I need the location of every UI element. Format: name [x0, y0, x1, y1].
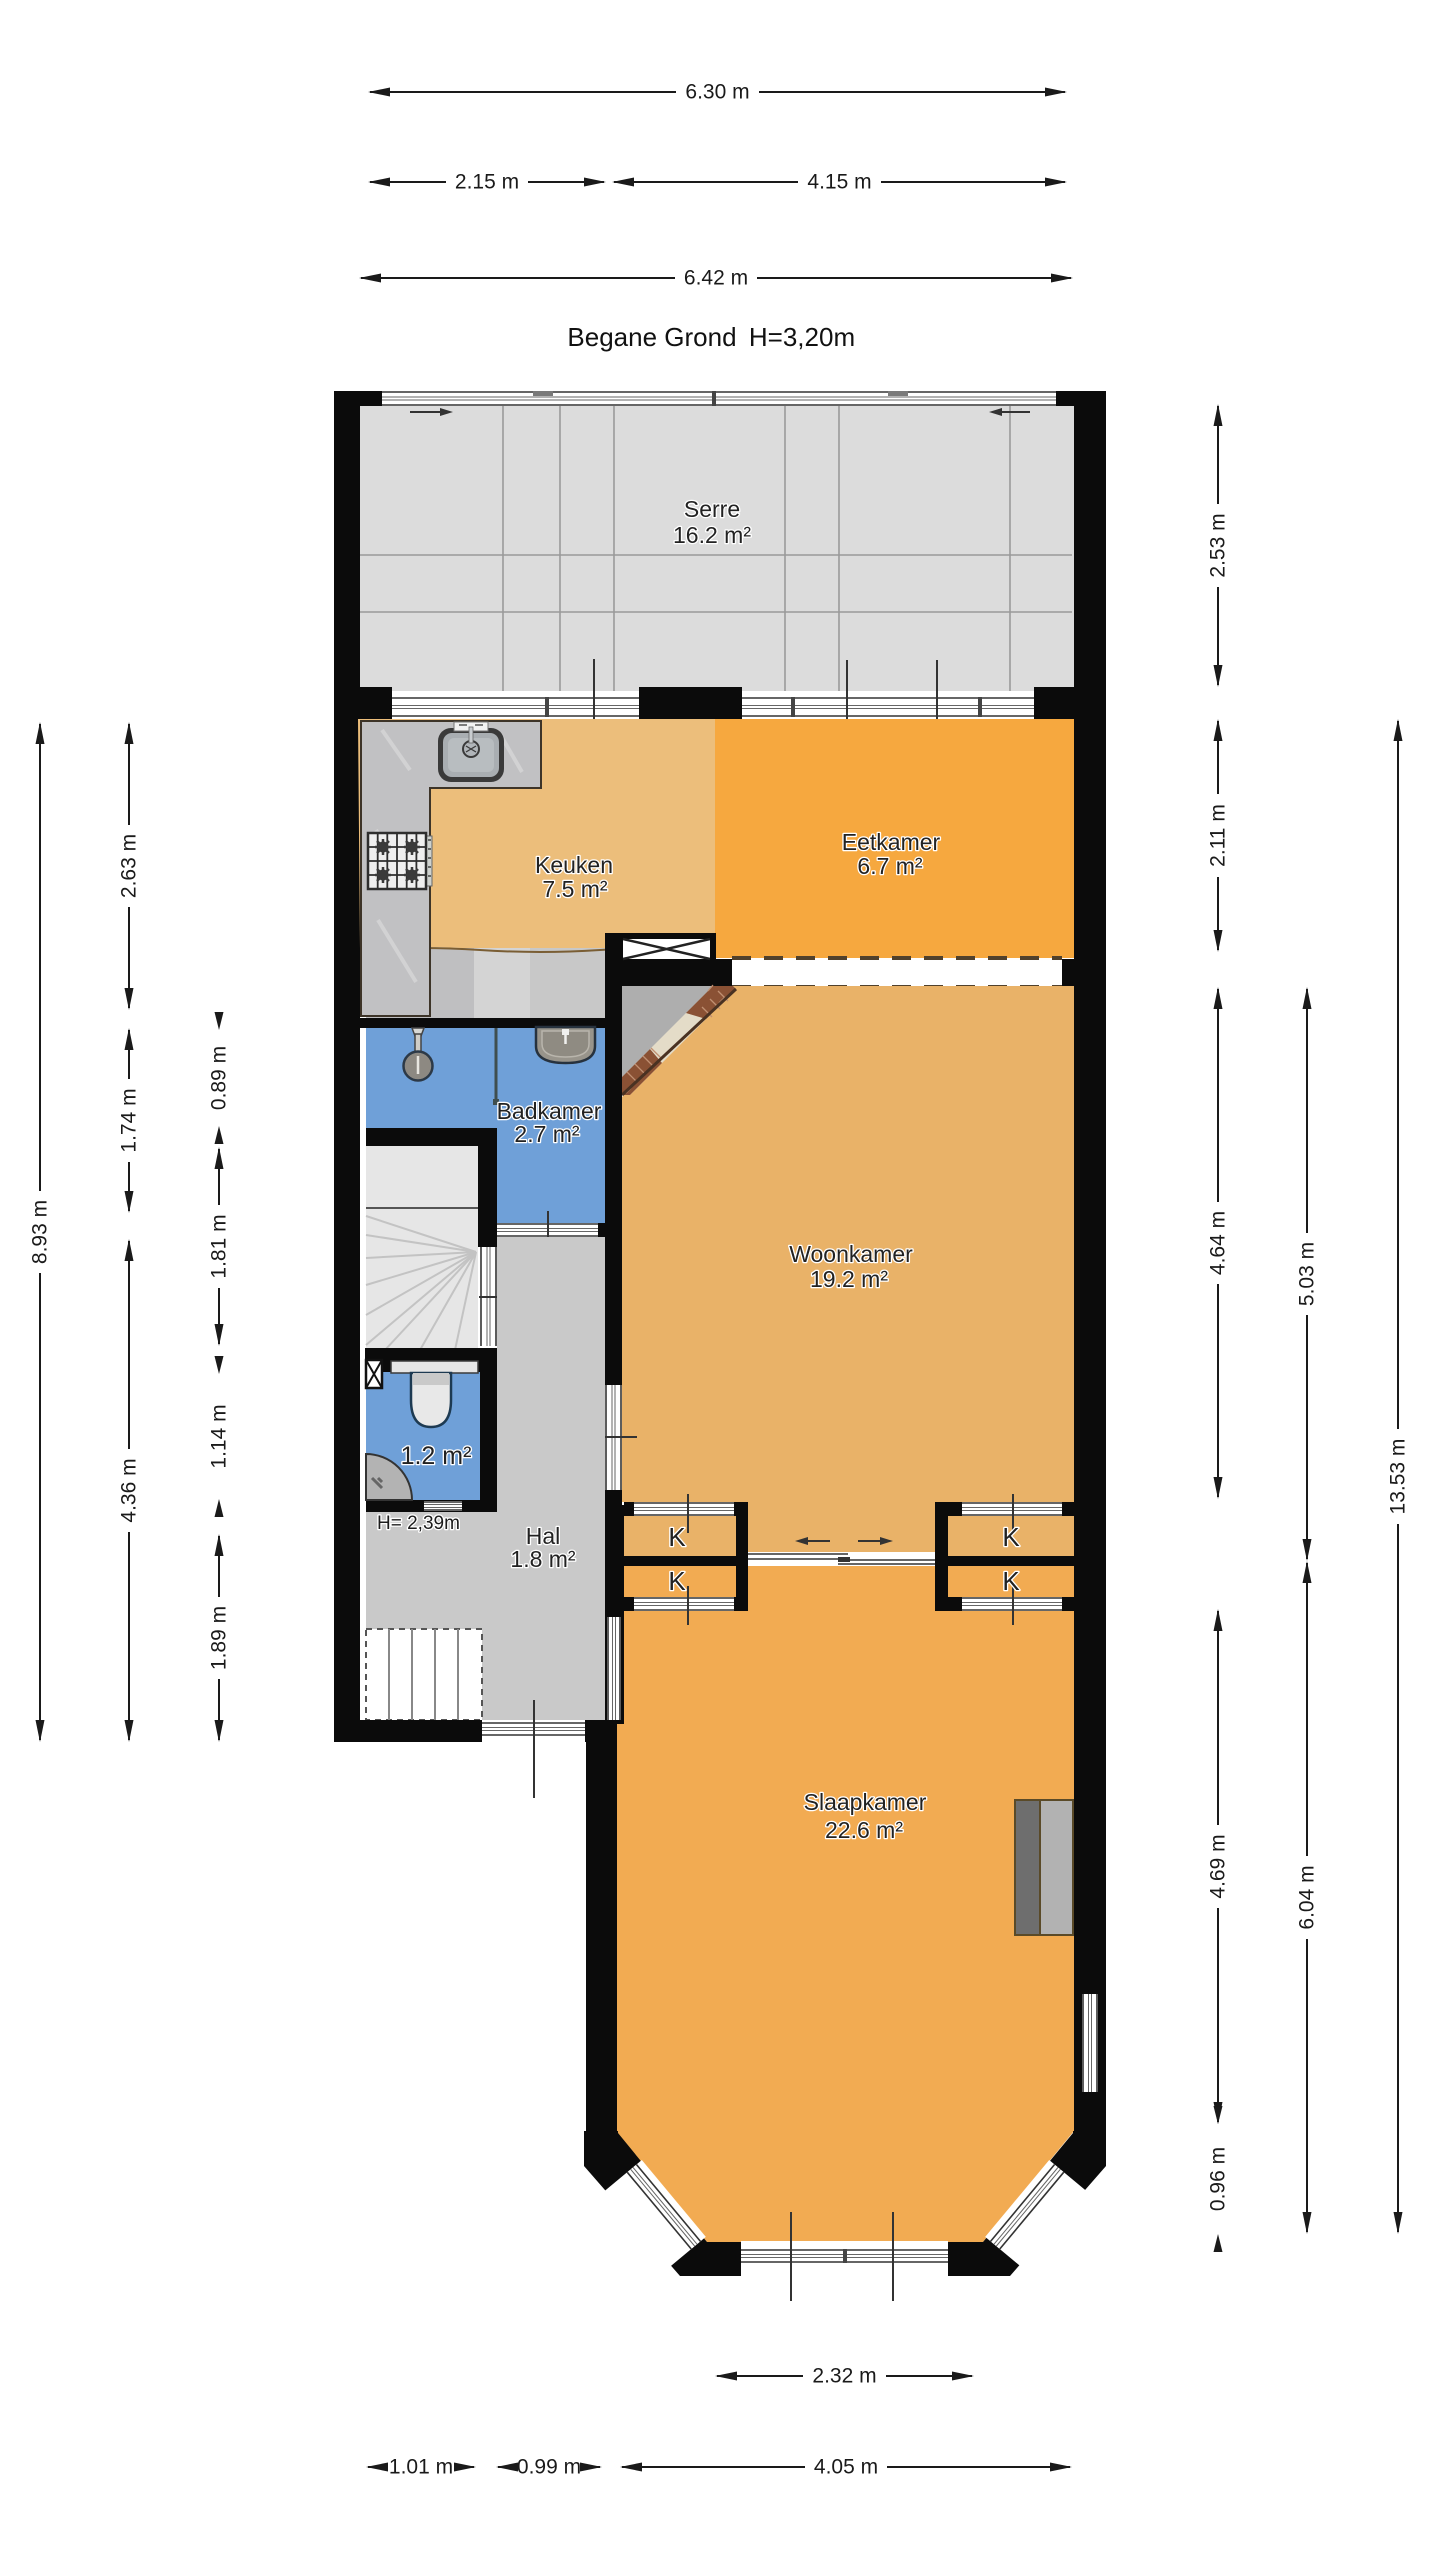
svg-text:1.01 m: 1.01 m	[389, 2456, 453, 2479]
svg-text:7.5 m²: 7.5 m²	[542, 876, 608, 902]
svg-text:Serre: Serre	[684, 496, 740, 522]
svg-text:K: K	[668, 1522, 686, 1552]
svg-text:0.89 m: 0.89 m	[208, 1046, 231, 1110]
svg-text:1.81 m: 1.81 m	[208, 1214, 231, 1278]
svg-text:K: K	[1002, 1566, 1020, 1596]
svg-text:0.96 m: 0.96 m	[1207, 2147, 1230, 2211]
svg-text:1.2 m²: 1.2 m²	[401, 1442, 472, 1470]
svg-text:19.2 m²: 19.2 m²	[810, 1266, 888, 1292]
svg-text:2.63 m: 2.63 m	[118, 834, 141, 898]
svg-text:Keuken: Keuken	[535, 852, 613, 878]
svg-text:Eetkamer: Eetkamer	[842, 829, 941, 855]
svg-text:22.6 m²: 22.6 m²	[825, 1817, 903, 1843]
svg-text:4.64 m: 4.64 m	[1207, 1211, 1230, 1275]
svg-text:6.30 m: 6.30 m	[685, 81, 749, 104]
svg-text:K: K	[1002, 1522, 1020, 1552]
svg-text:2.53 m: 2.53 m	[1207, 513, 1230, 577]
svg-text:Slaapkamer: Slaapkamer	[804, 1789, 927, 1815]
svg-text:16.2 m²: 16.2 m²	[673, 522, 751, 548]
svg-text:6.42 m: 6.42 m	[684, 267, 748, 290]
svg-text:4.69 m: 4.69 m	[1207, 1834, 1230, 1898]
svg-text:2.7 m²: 2.7 m²	[514, 1121, 580, 1147]
svg-text:4.15 m: 4.15 m	[807, 171, 871, 194]
svg-text:2.15 m: 2.15 m	[455, 171, 519, 194]
svg-text:H=3,20m: H=3,20m	[749, 322, 855, 352]
svg-text:1.89 m: 1.89 m	[208, 1606, 231, 1670]
svg-text:1.8 m²: 1.8 m²	[510, 1546, 576, 1572]
svg-text:6.7 m²: 6.7 m²	[857, 853, 923, 879]
svg-text:1.74 m: 1.74 m	[118, 1088, 141, 1152]
svg-text:4.36 m: 4.36 m	[118, 1458, 141, 1522]
svg-text:2.11 m: 2.11 m	[1207, 804, 1230, 867]
svg-text:5.03 m: 5.03 m	[1296, 1242, 1319, 1306]
svg-text:Woonkamer: Woonkamer	[789, 1241, 913, 1267]
svg-text:0.99 m: 0.99 m	[517, 2456, 581, 2479]
svg-text:2.32 m: 2.32 m	[812, 2365, 876, 2388]
svg-text:1.14 m: 1.14 m	[208, 1404, 231, 1468]
svg-text:4.05 m: 4.05 m	[814, 2456, 878, 2479]
svg-text:Begane Grond: Begane Grond	[567, 322, 736, 352]
svg-text:8.93 m: 8.93 m	[29, 1200, 52, 1264]
svg-text:K: K	[668, 1566, 686, 1596]
svg-text:H= 2,39m: H= 2,39m	[377, 1513, 460, 1534]
svg-text:6.04 m: 6.04 m	[1296, 1865, 1319, 1929]
svg-text:13.53 m: 13.53 m	[1387, 1439, 1410, 1515]
